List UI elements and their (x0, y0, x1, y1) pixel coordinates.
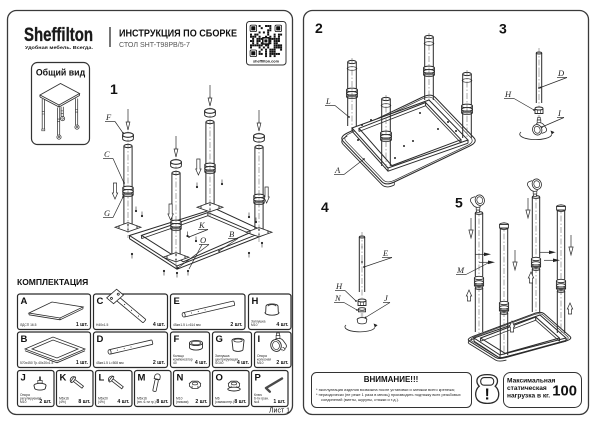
svg-text:O: O (216, 373, 223, 384)
svg-text:Максимальная: Максимальная (507, 378, 556, 385)
svg-text:1 шт.: 1 шт. (273, 399, 286, 405)
svg-text:4 шт.: 4 шт. (117, 399, 130, 405)
svg-text:2 шт.: 2 шт. (195, 399, 208, 405)
svg-text:J: J (21, 373, 26, 384)
svg-text:М10: М10 (257, 361, 264, 365)
svg-text:E: E (382, 248, 389, 258)
svg-text:E: E (174, 296, 180, 307)
svg-text:Общий вид: Общий вид (36, 68, 86, 78)
svg-text:(вн. 6-ти гр.): (вн. 6-ти гр.) (137, 400, 156, 404)
svg-text:1: 1 (110, 81, 118, 97)
svg-text:!: ! (485, 387, 490, 404)
svg-text:Лист 1: Лист 1 (269, 408, 290, 415)
svg-text:КОМПЛЕКТАЦИЯ: КОМПЛЕКТАЦИЯ (17, 277, 88, 287)
svg-text:(низкая): (низкая) (176, 400, 189, 404)
svg-text:P: P (255, 373, 262, 384)
svg-text:2 шт.: 2 шт. (153, 360, 166, 366)
svg-text:B: B (229, 229, 234, 239)
svg-text:Н40х1.5: Н40х1.5 (96, 323, 108, 327)
svg-text:D: D (557, 68, 565, 78)
svg-text:sheffilton.com: sheffilton.com (253, 60, 280, 64)
svg-text:H: H (252, 296, 259, 307)
svg-text:3: 3 (499, 21, 507, 37)
svg-text:ВНИМАНИЕ!!!: ВНИМАНИЕ!!! (364, 375, 419, 384)
svg-text:F: F (174, 334, 180, 345)
svg-text:4 шт.: 4 шт. (195, 360, 208, 366)
svg-text:C: C (104, 149, 110, 159)
svg-text:(4%): (4%) (59, 400, 66, 404)
svg-text:G: G (104, 208, 110, 218)
svg-text:2 шт.: 2 шт. (230, 322, 243, 328)
svg-text:K: K (60, 373, 67, 384)
svg-text:СТОЛ SHT-T98PB/5-7: СТОЛ SHT-T98PB/5-7 (119, 42, 190, 49)
svg-text:Sheffilton: Sheffilton (24, 24, 93, 46)
svg-text:М10: М10 (20, 400, 27, 404)
svg-text:(самоконтр.): (самоконтр.) (215, 400, 234, 404)
svg-text:ЛДСП 16.5: ЛДСП 16.5 (20, 323, 37, 327)
svg-text:2: 2 (315, 20, 323, 36)
svg-text:8 шт.: 8 шт. (156, 399, 169, 405)
svg-text:M: M (138, 373, 146, 384)
svg-text:45øх1.5 L=614 мм: 45øх1.5 L=614 мм (173, 323, 201, 327)
svg-text:570х450 Тр.40х20х1.5: 570х450 Тр.40х20х1.5 (20, 361, 54, 365)
svg-text:1 шт.: 1 шт. (76, 360, 89, 366)
svg-text:B: B (21, 334, 28, 345)
svg-text:2 шт.: 2 шт. (276, 360, 289, 366)
svg-text:N: N (177, 373, 184, 384)
svg-text:8 шт.: 8 шт. (234, 399, 247, 405)
svg-text:статическая: статическая (507, 385, 547, 392)
svg-text:5: 5 (455, 195, 463, 211)
svg-text:нагрузка в кг.: нагрузка в кг. (507, 393, 550, 400)
svg-text:ИНСТРУКЦИЯ ПО СБОРКЕ: ИНСТРУКЦИЯ ПО СБОРКЕ (119, 29, 237, 40)
svg-text:F: F (105, 112, 112, 122)
svg-text:H: H (504, 89, 512, 99)
svg-text:8 шт.: 8 шт. (78, 399, 91, 405)
svg-text:2 шт.: 2 шт. (39, 399, 52, 405)
svg-text:H: H (335, 281, 343, 291)
svg-text:SG40: SG40 (215, 361, 224, 365)
svg-text:I: I (258, 334, 261, 345)
svg-text:4 шт.: 4 шт. (276, 322, 289, 328)
svg-text:45øх1.5 L=508 мм: 45øх1.5 L=508 мм (96, 361, 124, 365)
svg-text:№4: №4 (254, 400, 260, 404)
svg-text:A: A (334, 165, 341, 175)
svg-text:40: 40 (173, 361, 177, 365)
svg-text:D: D (97, 334, 104, 345)
svg-text:(4%): (4%) (98, 400, 105, 404)
svg-text:1 шт.: 1 шт. (76, 322, 89, 328)
svg-text:Удобная мебель. Всегда.: Удобная мебель. Всегда. (25, 44, 93, 50)
svg-text:M: M (456, 265, 465, 275)
svg-text:4 шт.: 4 шт. (237, 360, 250, 366)
svg-text:G: G (216, 334, 223, 345)
svg-text:L: L (325, 96, 331, 106)
svg-text:соединений (винты, шурупы, стя: соединений (винты, шурупы, стяжки и т.д.… (321, 397, 399, 402)
svg-text:C: C (97, 296, 104, 307)
svg-text:4: 4 (321, 199, 329, 215)
svg-text:4 шт.: 4 шт. (153, 322, 166, 328)
svg-text:100: 100 (552, 384, 577, 400)
svg-text:М10: М10 (251, 323, 258, 327)
svg-text:O: O (200, 235, 206, 245)
svg-text:A: A (21, 296, 28, 307)
svg-text:L: L (99, 373, 105, 384)
